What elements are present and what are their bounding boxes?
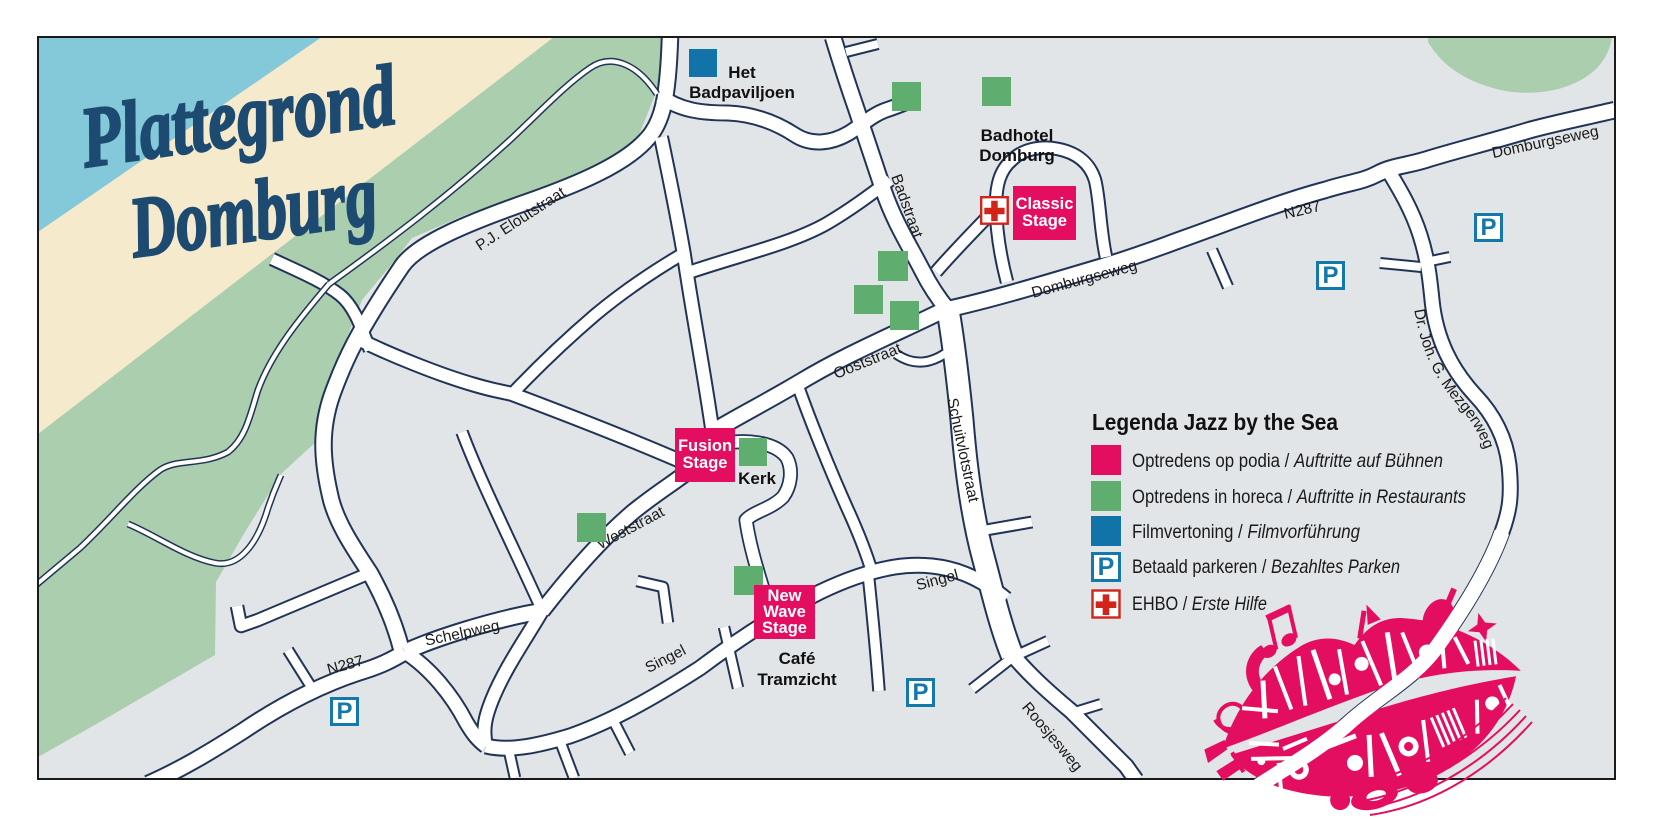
svg-text:Badhotel: Badhotel — [981, 126, 1054, 145]
svg-text:Kerk: Kerk — [738, 469, 776, 488]
svg-text:P: P — [1480, 214, 1496, 241]
svg-text:Optredens in horeca / Auftritt: Optredens in horeca / Auftritte in Resta… — [1132, 487, 1466, 508]
svg-text:Filmvertoning / Filmvorführung: Filmvertoning / Filmvorführung — [1132, 522, 1360, 543]
svg-text:Fusion: Fusion — [678, 437, 732, 455]
svg-text:Stage: Stage — [683, 454, 728, 472]
svg-text:Legenda Jazz by the Sea: Legenda Jazz by the Sea — [1092, 409, 1339, 435]
svg-text:Het: Het — [728, 63, 756, 82]
svg-text:Tramzicht: Tramzicht — [757, 670, 837, 689]
svg-text:P: P — [1322, 262, 1338, 289]
svg-text:EHBO / Erste Hilfe: EHBO / Erste Hilfe — [1132, 594, 1267, 615]
svg-text:Café: Café — [779, 649, 816, 668]
svg-text:Stage: Stage — [1022, 212, 1067, 230]
svg-text:P: P — [336, 698, 352, 725]
svg-text:Badpaviljoen: Badpaviljoen — [689, 83, 795, 102]
svg-text:Domburg: Domburg — [979, 146, 1055, 165]
svg-text:P: P — [1098, 553, 1115, 581]
svg-text:Optredens op podia / Auftritte: Optredens op podia / Auftritte auf Bühne… — [1132, 451, 1443, 472]
svg-text:Stage: Stage — [762, 619, 807, 637]
svg-text:Betaald parkeren / Bezahltes P: Betaald parkeren / Bezahltes Parken — [1132, 557, 1400, 578]
svg-text:P: P — [912, 679, 928, 706]
svg-text:Classic: Classic — [1016, 195, 1074, 213]
